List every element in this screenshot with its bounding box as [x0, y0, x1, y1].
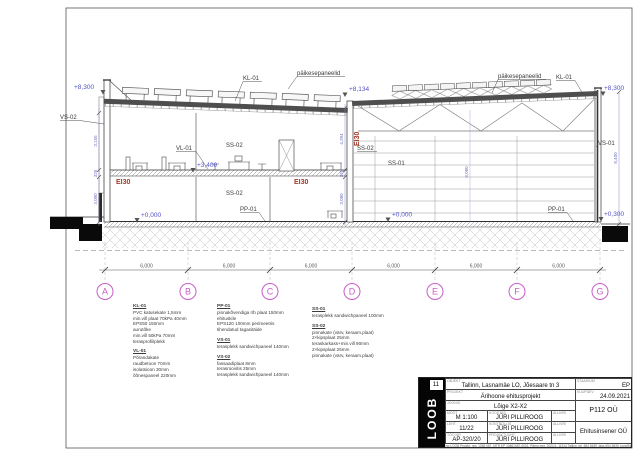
- cell-label: OBJEKT: [447, 380, 461, 384]
- titleblock-name1-cell: KOOSTAS JÜRI PILLIROOG: [487, 410, 551, 421]
- scale-value: M 1:100: [456, 415, 478, 421]
- legend-line: terasplekk sandwichpaneel 140mm: [217, 344, 309, 350]
- label-kl01-right: KL-01: [556, 75, 573, 81]
- intermediate-slab: [110, 170, 347, 176]
- label-vl01: VL-01: [176, 146, 193, 152]
- titleblock-company-cell: P112 OÜ: [575, 400, 631, 421]
- company-name: P112 OÜ: [589, 407, 617, 414]
- vertical-dimensions: [97, 90, 621, 226]
- cell-label: ALLKIRI: [553, 412, 566, 416]
- grid-bubble-g: G: [596, 287, 603, 297]
- titleblock-drawing-title-cell: JOONIS Lõige X2-X2: [445, 400, 575, 410]
- label-vs01: VS-01: [598, 141, 615, 147]
- label-pp01-left: PP-01: [240, 207, 257, 213]
- foundation-block-right: [602, 226, 628, 242]
- date-value: 24.09.2021: [600, 394, 630, 400]
- cell-label: JOONIS: [447, 402, 460, 406]
- titleblock-sign3-cell: ALLKIRI: [551, 432, 575, 443]
- label-pp01-right: PP-01: [548, 207, 565, 213]
- label-ss02-lower: SS-02: [226, 191, 243, 197]
- elevation-right-top: +8,300: [604, 85, 624, 92]
- elevation-mid-floor: +3,400: [197, 162, 217, 169]
- cell-label: PROJEKT: [447, 391, 463, 395]
- left-building: [99, 80, 354, 222]
- label-solar-left: päikesepaneelid: [297, 71, 340, 77]
- dim-hall-height: 8,080: [464, 166, 469, 178]
- wall-a: [104, 101, 110, 222]
- legend-line: tihendatud tagasitäide: [217, 327, 309, 333]
- grid-bubble-c: C: [267, 287, 274, 297]
- titleblock-engineer-cell: Ehitusinsener OÜ: [575, 421, 631, 443]
- left-roof: [104, 87, 349, 116]
- legend-line: õõnespaneel 220mm: [133, 373, 213, 379]
- cell-label: KUUPÄEV: [577, 391, 594, 395]
- label-solar-right: päikesepaneelid: [498, 74, 541, 80]
- drawn-by-name: JÜRI PILLIROOG: [496, 415, 543, 421]
- fire-rating-mid: EI30: [294, 179, 309, 186]
- dim-bay-5: 6,000: [470, 264, 483, 270]
- grid-bubble-f: F: [514, 287, 520, 297]
- dim-mid-slab: 320: [339, 169, 344, 177]
- cell-label: KOOSTAS: [489, 412, 506, 416]
- dim-left-lower: 3,080: [93, 193, 98, 205]
- titleblock-footer: Osaühing LOOB Projekt, reg. 1065 087, MT…: [445, 443, 631, 447]
- label-ss01-hall: SS-01: [388, 161, 405, 167]
- dim-right-wall: 8,400: [613, 152, 618, 164]
- dim-left-upper: 3,155: [93, 135, 98, 147]
- cell-label: KONTROLLIS: [489, 423, 511, 427]
- cladding-vs02: [99, 97, 104, 193]
- legend-line: terasprofiilplekk: [133, 339, 213, 345]
- titleblock-scale-cell: MÕÕT M 1:100: [445, 410, 487, 421]
- elevation-ground-right: +0,000: [392, 212, 412, 219]
- titleblock-sign1-cell: ALLKIRI: [551, 410, 575, 421]
- drawing-title: Lõige X2-X2: [494, 404, 527, 410]
- legend-line: terasplekk sandwichpaneel 140mm: [217, 372, 309, 378]
- elevation-left-top: +8,300: [74, 84, 94, 91]
- titleblock-name3-cell: PROJEKTIJUHT JÜRI PILLIROOG: [487, 432, 551, 443]
- sheet-number-box: 11: [429, 379, 444, 391]
- wall-d: [347, 101, 353, 222]
- label-kl01-left: KL-01: [243, 76, 260, 82]
- titleblock-name2-cell: KONTROLLIS JÜRI PILLIROOG: [487, 421, 551, 432]
- cell-label: STAADIUM: [577, 380, 595, 384]
- titleblock-sign2-cell: ALLKIRI: [551, 421, 575, 432]
- titleblock-sheet-cell: LEHT 11/22: [445, 421, 487, 432]
- legend-line: pinnakate (värv, keraam.plaat): [312, 353, 420, 359]
- legend-col-3: SS-01 terasplekk sandwichpaneel 100mm SS…: [312, 307, 420, 358]
- elevation-right-bottom: +0,300: [604, 211, 624, 218]
- grid-bubble-a: A: [102, 287, 108, 297]
- dim-bay-3: 6,000: [305, 264, 318, 270]
- grid-bubble-e: E: [432, 287, 438, 297]
- lead-name: JÜRI PILLIROOG: [496, 437, 543, 443]
- label-vs02: VS-02: [60, 115, 77, 121]
- grid-bubble-b: B: [185, 287, 191, 297]
- label-ss02-upper: SS-02: [226, 143, 243, 149]
- dim-bay-6: 6,000: [552, 264, 565, 270]
- elevation-mid-top: +8,134: [349, 86, 369, 93]
- titleblock-stage-cell: STAADIUM EP: [575, 378, 631, 389]
- cell-label: MÕÕT: [447, 412, 458, 416]
- cell-label: TÖÖ NR: [447, 434, 461, 438]
- dim-bay-1: 6,000: [140, 264, 153, 270]
- right-roof: [351, 78, 598, 109]
- object-address: Tallinn, Lasnamäe LO, Jõesaare tn 3: [462, 383, 560, 389]
- company-logo: LOOB 11: [419, 378, 445, 447]
- right-hall: [351, 78, 602, 222]
- fire-rating-wall: EI30: [354, 131, 361, 146]
- grid-bubble-d: D: [349, 287, 356, 297]
- titleblock-workno-cell: TÖÖ NR AP-320/20: [445, 432, 487, 443]
- project-stage: EP: [622, 383, 630, 389]
- titleblock-object-cell: OBJEKT Tallinn, Lasnamäe LO, Jõesaare tn…: [445, 378, 575, 389]
- elevation-ground-left: +0,000: [141, 212, 161, 219]
- drawing-sheet: +8,300 +8,134 +8,300 +3,400 +0,000 +0,00…: [0, 0, 640, 452]
- work-number: AP-320/20: [452, 437, 480, 443]
- fire-rating-left: EI30: [116, 179, 131, 186]
- dim-mid-lower: 3,080: [339, 193, 344, 205]
- cell-label: LEHT: [447, 423, 456, 427]
- legend-col-1: KL-01 PVC katusekate 1,5mm min.vill plaa…: [133, 304, 213, 378]
- checked-by-name: JÜRI PILLIROOG: [496, 426, 543, 432]
- dim-bay-4: 6,000: [387, 264, 400, 270]
- legend-line: terasplekk sandwichpaneel 100mm: [312, 313, 420, 319]
- cell-label: ALLKIRI: [553, 423, 566, 427]
- cell-label: ALLKIRI: [553, 434, 566, 438]
- dim-left-slab: 320: [93, 169, 98, 177]
- project-name: Ärihoone ehitusprojekt: [481, 394, 541, 400]
- dim-bay-2: 6,000: [223, 264, 236, 270]
- titleblock-date-cell: KUUPÄEV 24.09.2021: [575, 389, 631, 400]
- logo-text: LOOB: [425, 397, 439, 440]
- titleblock-project-cell: PROJEKT Ärihoone ehitusprojekt: [445, 389, 575, 400]
- title-block: LOOB 11 OBJEKT Tallinn, Lasnamäe LO, Jõe…: [418, 377, 632, 448]
- foundation-block-left2: [79, 224, 102, 241]
- engineer-company: Ehitusinsener OÜ: [580, 429, 627, 435]
- sheet-count: 11/22: [459, 426, 474, 432]
- dim-mid-upper: 4,394: [339, 133, 344, 145]
- legend-col-2: PP-01 pinnakõvendiga r/b plaat 150mm ehi…: [217, 304, 309, 378]
- cell-label: PROJEKTIJUHT: [489, 434, 515, 438]
- foundation-block-left: [50, 217, 83, 229]
- door-symbol: [279, 140, 294, 171]
- furniture-symbols: [126, 156, 343, 218]
